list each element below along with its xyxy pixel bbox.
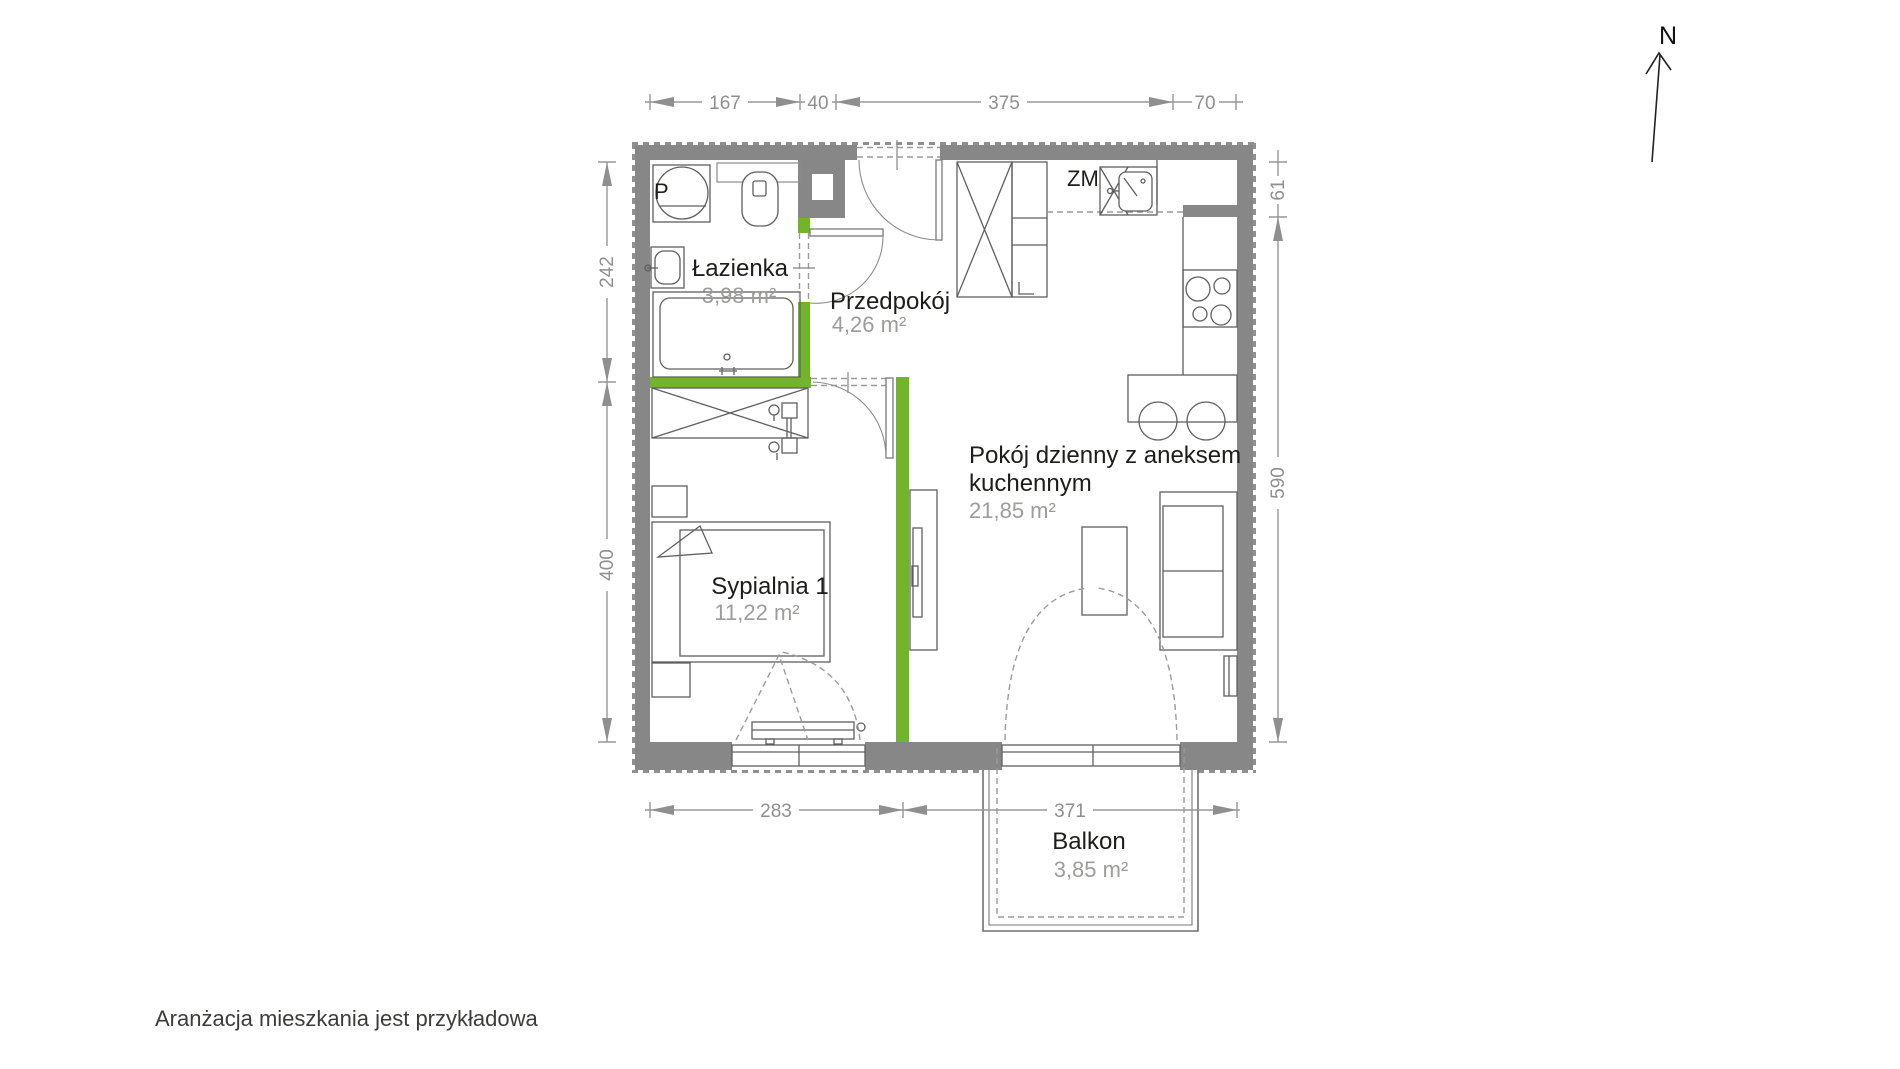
floor-plan-page: P (0, 0, 1900, 1069)
entrance-door (857, 140, 942, 240)
coffee-table (1082, 527, 1127, 615)
stove (1183, 270, 1237, 327)
sofa (1160, 492, 1237, 650)
wall-bottom-left (635, 742, 732, 770)
chair-2 (1187, 402, 1225, 440)
toilet (742, 172, 778, 226)
chair-1 (1139, 402, 1177, 440)
bedroom-window (732, 652, 865, 766)
shaft-niche-wall (1183, 205, 1237, 217)
plumbing-valves (769, 403, 797, 460)
dim-top-1: 167 (709, 93, 741, 114)
room-area-balcony: 3,85 m² (1054, 857, 1129, 882)
kitchen-cabinet-column (1012, 162, 1047, 297)
dim-right-1: 61 (1268, 179, 1289, 200)
room-area-hallway: 4,26 m² (832, 312, 907, 337)
green-wall-bathroom-upper (798, 218, 810, 233)
tv-cabinet (910, 490, 937, 650)
fridge-icon (1019, 282, 1034, 294)
kitchen-sink (1100, 167, 1157, 215)
room-area-bedroom: 11,22 m² (714, 600, 799, 625)
wall-bottom-middle (865, 742, 1002, 770)
room-area-bathroom: 3,98 m² (702, 283, 777, 308)
dim-right-2: 590 (1268, 467, 1289, 499)
wall-bottom-right (1180, 742, 1253, 770)
dim-top-4: 70 (1194, 93, 1215, 114)
footer-disclaimer: Aranżacja mieszkania jest przykładowa (155, 1006, 538, 1031)
dim-bottom-2: 371 (1054, 801, 1086, 822)
room-label-hallway: Przedpokój (830, 288, 950, 315)
dishwasher-label: ZM (1067, 166, 1099, 191)
radiator-living (1224, 656, 1237, 696)
bedroom-radiator (752, 722, 865, 744)
room-area-living: 21,85 m² (969, 498, 1056, 523)
dimensions-left: 242 400 (597, 162, 618, 742)
window-swing-lines (736, 655, 808, 740)
room-label-living-2: kuchennym (969, 470, 1092, 497)
north-arrow: N (1646, 22, 1677, 162)
green-wall-bedroom-divider (896, 377, 909, 742)
nightstand-2 (652, 663, 690, 697)
floor-plan-svg: P (0, 0, 1900, 1069)
room-labels: Łazienka 3,98 m² Przedpokój 4,26 m² Pokó… (692, 255, 1241, 882)
balcony-door-swing-left (1005, 588, 1088, 740)
bedroom-closet (652, 388, 808, 460)
wall-top-left (635, 145, 857, 160)
dining-table (1128, 375, 1237, 422)
dim-left-2: 400 (597, 549, 618, 581)
hallway-wardrobe (957, 162, 1012, 297)
entrance-nook-recess (812, 174, 833, 200)
dim-left-1: 242 (597, 256, 618, 288)
dimensions-top: 167 40 375 70 (645, 93, 1243, 114)
bedroom-door (811, 372, 893, 458)
room-label-balcony: Balkon (1052, 828, 1125, 855)
bathroom-sink (645, 247, 684, 288)
balcony-door-swing-right (1097, 588, 1177, 740)
nightstand-1 (652, 486, 687, 517)
north-label: N (1659, 22, 1677, 50)
room-label-living-1: Pokój dzienny z aneksem (969, 442, 1241, 469)
dim-top-2: 40 (807, 93, 828, 114)
room-label-bathroom: Łazienka (692, 255, 789, 282)
pillow (658, 526, 712, 557)
wall-left (635, 145, 650, 770)
washer-label: P (654, 179, 669, 204)
wall-top-right (940, 145, 1253, 160)
dim-top-3: 375 (988, 93, 1020, 114)
room-label-bedroom: Sypialnia 1 (711, 573, 828, 600)
bedroom-furniture (652, 388, 830, 697)
kitchen-area: ZM (957, 160, 1237, 440)
dimensions-bottom: 283 371 (645, 801, 1240, 822)
dim-bottom-1: 283 (760, 801, 792, 822)
window-swing-arc (782, 652, 860, 740)
green-wall-bathroom-bottom (650, 377, 811, 388)
north-arrow-line (1652, 55, 1660, 162)
living-room-furniture (910, 490, 1237, 696)
dimensions-right: 61 590 (1268, 150, 1289, 742)
